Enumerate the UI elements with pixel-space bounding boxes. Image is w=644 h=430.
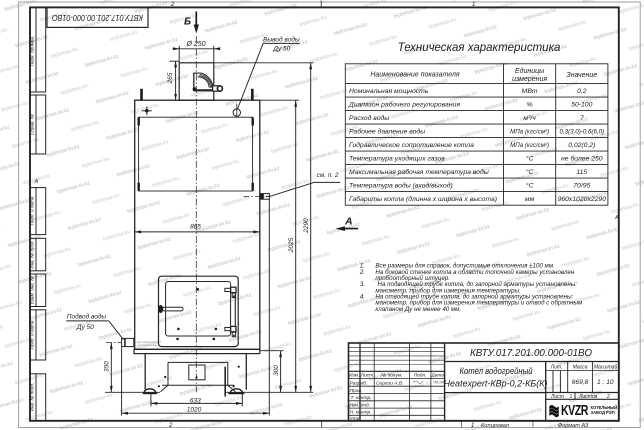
svg-text:№ докум.: № докум. (381, 373, 402, 379)
svg-text:2290: 2290 (303, 218, 310, 234)
svg-text:0,2: 0,2 (577, 88, 587, 95)
svg-text:Н. контр.: Н. контр. (350, 410, 372, 416)
svg-text:Подвод воды: Подвод воды (67, 312, 107, 320)
svg-text:м³/ч: м³/ч (523, 115, 536, 122)
svg-text:Взам. инв. №: Взам. инв. № (29, 276, 34, 304)
svg-text:Изм.: Изм. (349, 373, 359, 379)
svg-text:не более 250: не более 250 (561, 154, 603, 162)
svg-text:МПа (кгс/см²): МПа (кгс/см²) (510, 128, 549, 135)
svg-text:Ду 50: Ду 50 (76, 324, 94, 331)
svg-text:А: А (34, 179, 39, 185)
svg-text:865: 865 (190, 224, 201, 231)
svg-text:Максимальная рабочая температу: Максимальная рабочая температура воды (349, 168, 489, 176)
svg-text:115: 115 (576, 169, 587, 176)
svg-text:Листов: Листов (578, 394, 598, 400)
svg-text:Значение: Значение (566, 72, 597, 79)
svg-text:Масса: Масса (573, 364, 588, 370)
svg-text:Номинальная мощность: Номинальная мощность (349, 88, 429, 95)
svg-text:70/95: 70/95 (573, 182, 590, 189)
svg-text:960х1020х2290: 960х1020х2290 (558, 196, 607, 203)
svg-text:клапаном Ду не менее 40 мм.: клапаном Ду не менее 40 мм. (375, 306, 461, 313)
svg-text:Сергии А.В.: Сергии А.В. (376, 380, 403, 386)
svg-text:Температура воды (вход/выход): Температура воды (вход/выход) (349, 181, 453, 189)
svg-text:Heatexpert-КВр-0,2-КБ(К): Heatexpert-КВр-0,2-КБ(К) (444, 378, 548, 388)
svg-text:Подп.: Подп. (414, 373, 427, 379)
svg-text:А: А (614, 215, 619, 221)
svg-text:°С: °С (526, 181, 534, 189)
svg-text:669,8: 669,8 (572, 379, 589, 386)
svg-text:Подп. и дата: Подп. и дата (29, 196, 34, 225)
svg-text:Рабочее давление воды: Рабочее давление воды (349, 127, 425, 135)
svg-text:Техническая характеристика: Техническая характеристика (398, 42, 561, 54)
svg-text:Инв. № подл.: Инв. № подл. (29, 383, 34, 412)
svg-text:мм: мм (525, 196, 535, 203)
svg-text:Пров.: Пров. (350, 388, 363, 394)
svg-text:Справ. №: Справ. № (29, 114, 34, 135)
svg-text:КВТУ.017.201.00.000-01ВО: КВТУ.017.201.00.000-01ВО (470, 348, 592, 359)
svg-text:Расход воды: Расход воды (349, 114, 389, 122)
svg-text:для подвода воды: для подвода воды (137, 344, 158, 347)
svg-text:1 : 10: 1 : 10 (597, 379, 614, 386)
svg-text:Вывод воды: Вывод воды (263, 35, 300, 43)
svg-text:Температура уходящих газов: Температура уходящих газов (349, 154, 445, 162)
svg-text:Ø 250: Ø 250 (185, 41, 205, 48)
svg-text:МПа (кгс/см²): МПа (кгс/см²) (510, 142, 549, 149)
svg-text:300: 300 (273, 365, 280, 376)
svg-text:Б: Б (184, 17, 191, 28)
svg-text:ЗАВОД РЭП: ЗАВОД РЭП (591, 410, 615, 415)
svg-text:А: А (344, 216, 353, 228)
svg-text:Габариты котла (длинна х ширин: Габариты котла (длинна х ширина х высота… (349, 195, 497, 203)
svg-text:Формат А3: Формат А3 (558, 423, 589, 429)
svg-text:Гидравлическое сопротивление к: Гидравлическое сопротивление котла (349, 141, 474, 149)
svg-text:2: 2 (606, 394, 610, 400)
svg-text:измерения: измерения (512, 76, 547, 83)
svg-text:50-100: 50-100 (571, 101, 592, 108)
svg-text:1020: 1020 (187, 407, 202, 414)
svg-text:МВт: МВт (522, 88, 538, 95)
svg-text:Копировал: Копировал (481, 423, 510, 429)
svg-text:Лист: Лист (550, 394, 564, 400)
svg-text:Лит.: Лит. (550, 364, 563, 370)
svg-text:Единицы: Единицы (515, 67, 545, 75)
svg-text:см. п. 2: см. п. 2 (317, 172, 339, 179)
svg-text:2: 2 (168, 423, 173, 429)
svg-text:1: 1 (471, 423, 474, 429)
svg-text:Диапазон рабочего регулировани: Диапазон рабочего регулирования (348, 100, 460, 108)
svg-text:Котел водогрейный: Котел водогрейный (460, 366, 533, 376)
svg-text:Дата: Дата (430, 373, 444, 379)
svg-text:2025: 2025 (288, 237, 295, 253)
svg-text:Утв.: Утв. (350, 416, 361, 422)
svg-text:2.: 2. (359, 269, 365, 276)
svg-text:Наименование показателя: Наименование показателя (370, 72, 460, 79)
svg-text:°С: °С (526, 168, 534, 176)
svg-text:265: 265 (167, 72, 174, 84)
svg-text:0,3(3,0)-0,6(6,0): 0,3(3,0)-0,6(6,0) (559, 128, 604, 135)
svg-text:2: 2 (170, 2, 175, 8)
svg-text:Инв. № дубл.: Инв. № дубл. (29, 240, 34, 268)
svg-text:КВТУ.017.201.00.000-01ВО: КВТУ.017.201.00.000-01ВО (51, 13, 143, 22)
svg-text:3.: 3. (360, 281, 365, 288)
svg-text:Перв. примен.: Перв. примен. (29, 36, 34, 67)
svg-text:Чл.лл: Чл.лл (433, 379, 445, 384)
svg-text:Нач.отд.: Нач.отд. (350, 402, 371, 408)
svg-text:Лист: Лист (360, 373, 373, 379)
svg-text:4.: 4. (360, 293, 365, 300)
svg-text:Разраб.: Разраб. (350, 380, 368, 386)
svg-text:0,02(0,2): 0,02(0,2) (568, 142, 595, 149)
svg-text:%: % (527, 101, 533, 108)
svg-text:°С: °С (526, 154, 534, 162)
svg-text:1: 1 (472, 2, 475, 8)
svg-text:1: 1 (570, 394, 573, 400)
svg-text:Подп. и дата: Подп. и дата (29, 320, 34, 349)
svg-text:Масштаб: Масштаб (594, 364, 618, 370)
svg-text:Т. контр.: Т. контр. (351, 395, 372, 401)
svg-text:Ду 50: Ду 50 (272, 45, 290, 52)
svg-text:350: 350 (104, 361, 111, 372)
svg-text:7: 7 (580, 115, 584, 122)
svg-text:KVZR: KVZR (561, 403, 589, 419)
